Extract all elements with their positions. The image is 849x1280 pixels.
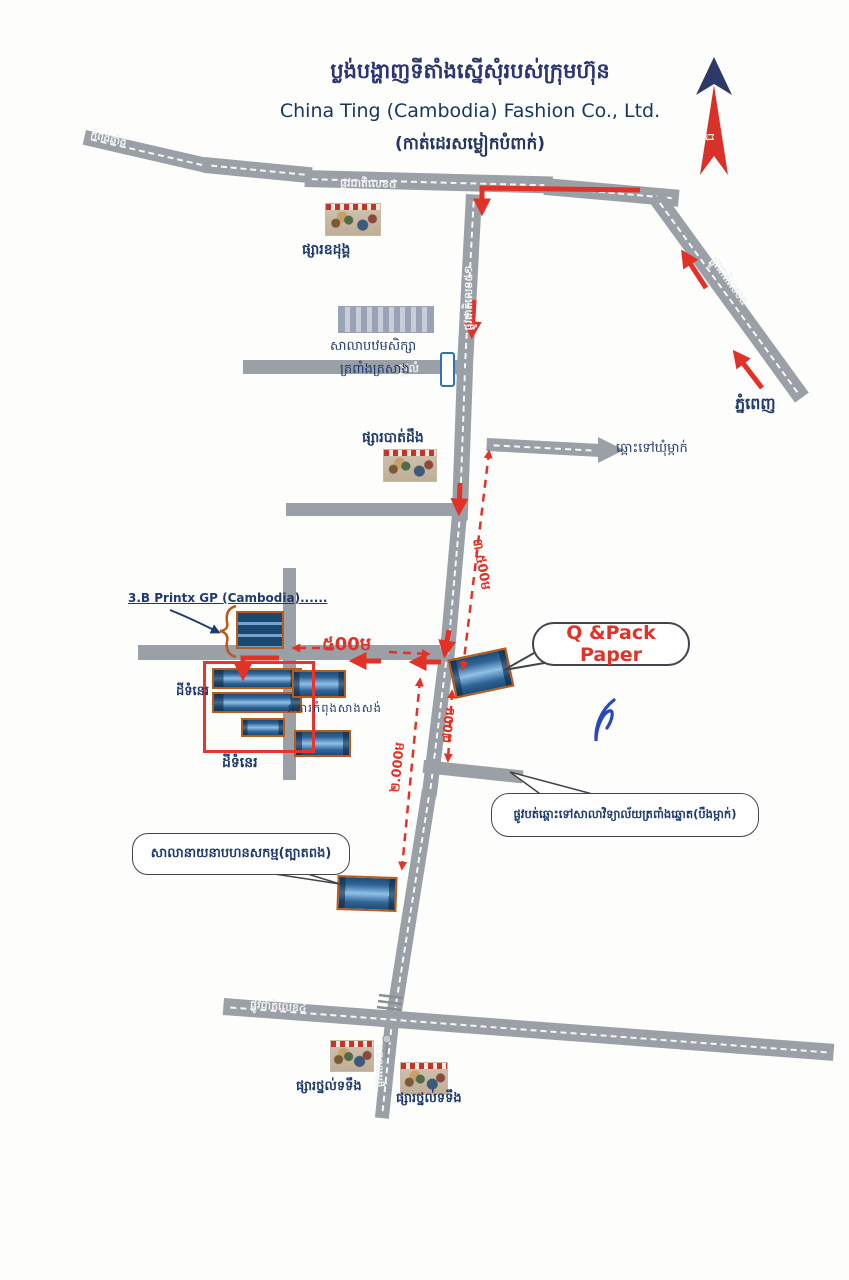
commune-hall-callout-text: សាលានាយនាបហនសកម្ម(ត្បាតពង) <box>151 845 332 864</box>
road-side-lane <box>286 503 461 516</box>
page-title: ប្លង់បង្ហាញទីតាំងស្នើសុំរបស់ក្រុមហ៊ុន <box>270 58 670 89</box>
road-label-nr51-upper: ផ្លូវជាតិលេខ៥១ <box>462 243 478 353</box>
batdoeng-market-label: ផ្សារបាត់ដឹង <box>362 428 424 449</box>
page-subtitle: (កាត់ដេរសម្លៀកបំពាក់) <box>270 133 670 158</box>
road-nr51-seg2 <box>452 368 473 520</box>
road-to-khum-mkak <box>486 438 599 457</box>
school-label-line1: សាលាបឋមសិក្សា <box>330 338 416 357</box>
school-photo <box>338 306 434 333</box>
qpack-building <box>447 647 514 699</box>
under-construction-label: អគារកំពុងសាងសង់ <box>288 701 382 718</box>
qpack-callout-text: Q &Pack Paper <box>534 622 688 666</box>
oudong-market-label: ផ្សារឧដុង្គ <box>302 240 350 261</box>
road-label-51-south: ផ្លូវលេខ៥១ <box>373 1016 388 1116</box>
printx-label: 3.B Printx GP (Cambodia)...... <box>128 591 327 605</box>
road-label-nr5-top: ផ្លូវជាតិលេខ៥ <box>340 177 397 194</box>
vacant-land-label-1: ដីទំនេរ <box>176 683 209 702</box>
ink-mark <box>596 700 614 741</box>
thnal-totung-label-right: ផ្សារថ្នល់ទទឹង <box>396 1090 462 1109</box>
vacant-land-label-2: ដីទំនេរ <box>222 753 258 774</box>
road-nr4 <box>223 998 835 1061</box>
map-canvas: ប្លង់បង្ហាញទីតាំងស្នើសុំរបស់ក្រុមហ៊ុន Ch… <box>0 0 849 1280</box>
north-arrow: ជ <box>688 55 740 185</box>
dest-label-phnom-penh: ភ្នំពេញ <box>735 393 776 417</box>
thnal-totung-market-photo-left <box>330 1040 374 1072</box>
road-nr51-seg3 <box>439 514 467 662</box>
oudong-market-photo <box>325 203 381 236</box>
distance-500m: ៥00ម <box>322 632 371 659</box>
printx-factory-building <box>236 611 284 649</box>
distance-2000m: ២.000ម <box>386 732 412 804</box>
north-arrow-letter: ជ <box>703 133 718 141</box>
dest-label-khum-mkak: ឆ្ពោះទៅឃុំម្កាក់ <box>616 440 688 459</box>
commune-hall-building <box>336 875 397 912</box>
batdoeng-market-photo <box>383 449 437 482</box>
road-label-nr5-diagonal: ផ្លូវជាតិលេខ៥ <box>689 233 767 331</box>
branch-road-callout-text: ផ្លូវបត់ឆ្ពោះទៅសាលាវិទ្យាល័យត្រពាំងឆ្នោត… <box>514 807 737 824</box>
printx-pointer-arrow <box>170 610 218 632</box>
commune-hall-callout: សាលានាយនាបហនសកម្ម(ត្បាតពង) <box>132 833 350 875</box>
thnal-totung-label-left: ផ្សារថ្នល់ទទឹង <box>296 1078 362 1097</box>
company-name: China Ting (Cambodia) Fashion Co., Ltd. <box>270 100 670 122</box>
school-label-line2: ត្រពាំងត្រសាង <box>340 361 410 380</box>
route-arrow-diag-1 <box>736 354 762 388</box>
distance-3500m: ៣.៥00ម <box>465 528 496 600</box>
branch-road-callout: ផ្លូវបត់ឆ្ពោះទៅសាលាវិទ្យាល័យត្រពាំងឆ្នោត… <box>491 793 759 837</box>
north-arrow-body <box>700 85 728 175</box>
qpack-callout: Q &Pack Paper <box>532 622 690 666</box>
road-nr5-seg2 <box>203 157 312 183</box>
bridge-icon <box>440 352 455 387</box>
